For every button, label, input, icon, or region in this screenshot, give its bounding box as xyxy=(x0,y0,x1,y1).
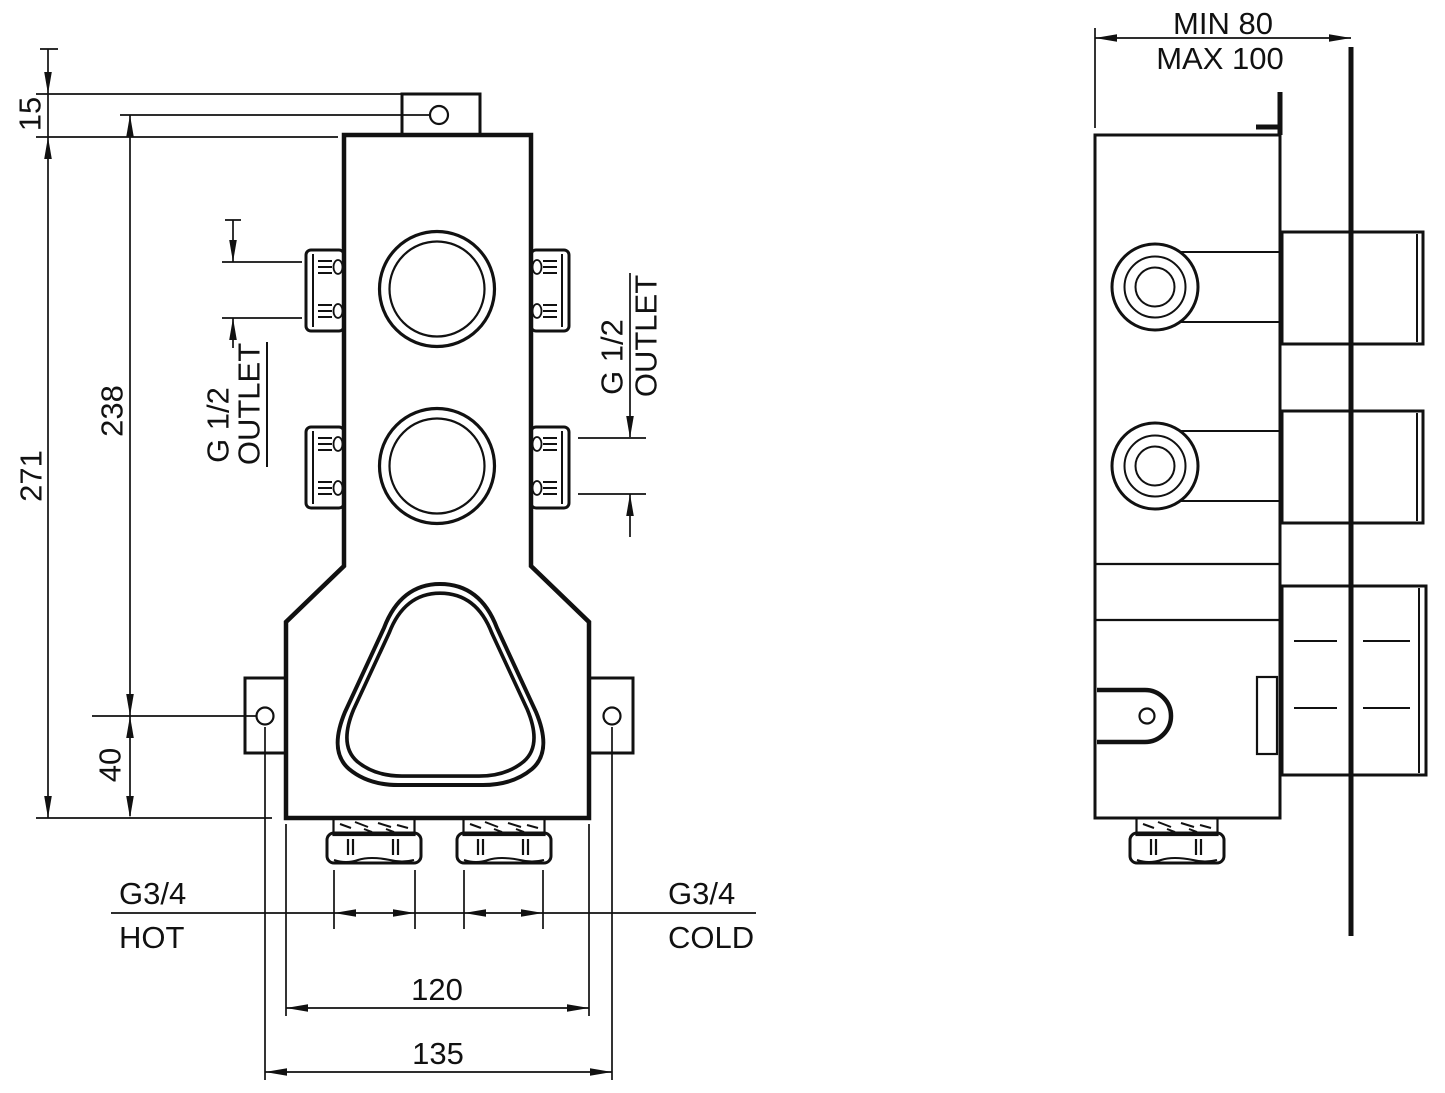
dim-271-label: 271 xyxy=(14,450,49,502)
front-view xyxy=(245,94,633,863)
side-boss-bottom xyxy=(1282,586,1426,775)
fixing-ear-right xyxy=(589,678,633,753)
dim-15-label: 15 xyxy=(13,97,48,131)
inlet-hot-word-label: HOT xyxy=(119,920,185,955)
outlet-nut-lower-right xyxy=(531,427,569,508)
dim-40-label: 40 xyxy=(93,748,128,782)
dim-135-label: 135 xyxy=(412,1036,464,1071)
valve-body-outline xyxy=(286,135,589,818)
tab-screw-hole xyxy=(430,106,448,124)
fixing-hole-left xyxy=(257,708,274,725)
dim-120-label: 120 xyxy=(411,972,463,1007)
inlet-nut-hot xyxy=(327,818,421,863)
side-front-bracket xyxy=(1257,677,1277,754)
inlet-cold-word-label: COLD xyxy=(668,920,754,955)
fixing-hole-right xyxy=(604,708,621,725)
inlet-nut-cold xyxy=(457,818,551,863)
service-opening xyxy=(338,584,544,785)
inlet-cold-thread-label: G3/4 xyxy=(668,876,735,911)
depth-min-label: MIN 80 xyxy=(1173,6,1273,41)
side-outlet-upper xyxy=(1112,244,1280,330)
side-body-outline xyxy=(1095,135,1280,818)
outlet-left-word-label: OUTLET xyxy=(232,343,267,465)
inlet-hot-thread-label: G3/4 xyxy=(119,876,186,911)
technical-drawing-page: 15 271 238 40 G 1/2 OUTLET G 1/2 OUTLET … xyxy=(0,0,1445,1093)
dim-238-label: 238 xyxy=(95,385,130,437)
side-mounting-tab xyxy=(1256,92,1280,135)
outlet-right-word-label: OUTLET xyxy=(629,275,664,397)
outlet-right-thread-label: G 1/2 xyxy=(595,319,630,395)
side-fixing-ear xyxy=(1097,690,1171,742)
handle-opening-upper xyxy=(380,232,495,347)
side-inlet-nut xyxy=(1130,818,1224,863)
outlet-nut-upper-right xyxy=(531,250,569,331)
side-view-dimensions: MIN 80 MAX 100 xyxy=(1095,6,1351,128)
handle-opening-lower xyxy=(380,409,495,524)
outlet-nut-lower-left xyxy=(306,427,344,508)
front-view-dimensions: 15 271 238 40 G 1/2 OUTLET G 1/2 OUTLET … xyxy=(13,49,757,1080)
outlet-nut-upper-left xyxy=(306,250,344,331)
valve-drawing: 15 271 238 40 G 1/2 OUTLET G 1/2 OUTLET … xyxy=(0,0,1445,1093)
side-view xyxy=(1095,47,1426,936)
depth-max-label: MAX 100 xyxy=(1156,41,1284,76)
outlet-left-thread-label: G 1/2 xyxy=(201,387,236,463)
side-outlet-lower xyxy=(1112,423,1280,509)
